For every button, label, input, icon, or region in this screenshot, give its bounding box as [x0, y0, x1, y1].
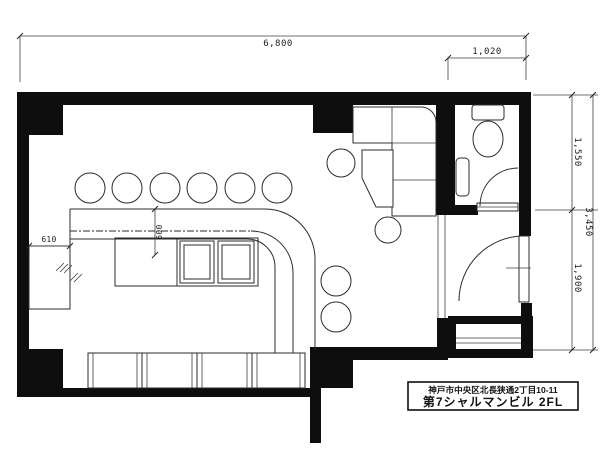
title-block-building: 第7シャルマンビル 2FL [423, 394, 563, 409]
entrance-door-leaf [519, 236, 529, 302]
bar-stool [321, 302, 351, 332]
dim-label-right-upper: 1,550 [572, 137, 582, 167]
back-cabinet-2 [142, 353, 197, 388]
counter-inner-edge [70, 239, 275, 353]
wall-bottom-right [310, 347, 448, 360]
counter-back-curve [251, 231, 293, 353]
lounge-stool [375, 217, 401, 243]
back-cabinet-4 [252, 353, 305, 388]
dim-label-right-lower: 1,900 [572, 263, 582, 293]
dim-label-counter-depth: 600 [155, 224, 164, 239]
back-cabinet-3 [197, 353, 252, 388]
bar-stools-top [75, 173, 292, 203]
equipment-unit-2-inner [222, 245, 250, 279]
equipment-unit-1-inner [184, 245, 210, 279]
toilet-sink [456, 158, 469, 196]
bar-stool [75, 173, 105, 203]
hatch-marks [56, 263, 82, 282]
wall-bottom [21, 388, 320, 397]
wall-corner-bottom-left [21, 349, 63, 388]
bar-stool [187, 173, 217, 203]
bar-stool [150, 173, 180, 203]
back-cabinet-1 [88, 353, 142, 388]
dim-label-left-cabinet: 610 [41, 235, 56, 244]
toilet-bowl [473, 121, 503, 157]
dim-label-top-width: 6,800 [263, 39, 293, 49]
left-cabinet [29, 246, 70, 309]
bar-stools-side [321, 266, 351, 332]
counter-equipment [115, 238, 258, 286]
floorplan-drawing: 6,800 1,020 1,550 1,900 3,450 610 600 神戸… [0, 0, 600, 449]
dim-label-toilet-width: 1,020 [472, 47, 502, 57]
wall-toilet-partition [436, 92, 455, 215]
bar-stool [262, 173, 292, 203]
equipment-unit-1 [180, 241, 214, 283]
bar-stool [225, 173, 255, 203]
wall-stair-stub [310, 388, 321, 443]
bar-stool [321, 266, 351, 296]
title-block: 神戸市中央区北長狭通2丁目10-11 第7シャルマンビル 2FL [408, 382, 578, 410]
toilet-door-swing-arc [480, 168, 518, 206]
bar-stool [112, 173, 142, 203]
wall-right-upper [519, 92, 531, 236]
dim-label-right-total: 3,450 [583, 207, 593, 237]
entrance-door-swing-arc [459, 236, 524, 301]
entrance-porch-frame [448, 316, 533, 358]
title-block-address: 神戸市中央区北長狭通2丁目10-11 [428, 384, 558, 395]
equipment-unit-2 [218, 241, 254, 283]
toilet-tank [472, 105, 504, 120]
back-cabinets [88, 353, 305, 388]
wall-column-top [313, 102, 353, 133]
wall-toilet-bottom [448, 205, 478, 215]
round-table [327, 149, 355, 177]
toilet-room [456, 105, 518, 211]
floorplan-sheet: 6,800 1,020 1,550 1,900 3,450 610 600 神戸… [0, 0, 600, 449]
bar-counter [29, 209, 315, 353]
corner-table [362, 150, 393, 207]
